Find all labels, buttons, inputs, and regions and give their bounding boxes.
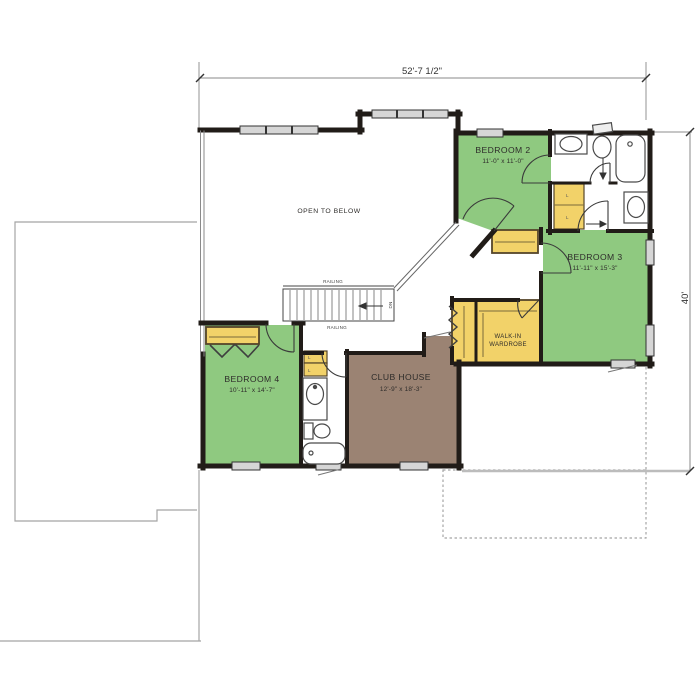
window [646,325,654,356]
bedroom4-size: 10'-11" x 14'-7" [229,387,275,394]
sink [628,197,645,218]
clubhouse-floor [349,336,457,464]
toilet-tank [593,123,613,135]
down-label: DN [388,301,393,308]
bedroom3-floor [543,230,650,363]
window [372,110,448,118]
open-to-below-label: OPEN TO BELOW [297,208,360,215]
window [477,129,503,137]
tub-drain [628,142,632,146]
bedroom3-name: BEDROOM 3 [567,252,622,262]
bedroom4-closet [206,327,259,344]
dimension-right-label: 40' [680,292,691,305]
window [400,462,428,470]
wardrobe-floor [452,300,541,363]
clubhouse-size: 12'-9" x 18'-3" [380,386,422,393]
wardrobe-name-line1: WALK-IN [495,334,522,340]
floor-plan-drawing: 52'-7 1/2" 40' [0,0,700,700]
bedroom3-size: 11'-11" x 15'-3" [572,265,617,272]
roof-outline-left [15,222,197,521]
railing-label-bottom: RAILING [327,325,347,330]
toilet-bowl [314,424,330,438]
wardrobe-name-line2: WARDROBE [489,342,527,348]
sink [560,137,582,152]
window [646,240,654,265]
bedroom4-floor [205,325,299,464]
clubhouse-name: CLUB HOUSE [371,372,431,382]
bedroom2-name: BEDROOM 2 [475,145,530,155]
window [232,462,260,470]
roof-outline-lower-right [443,470,646,538]
tub-drain [309,451,313,455]
floor-plan-canvas: 52'-7 1/2" 40' [0,0,700,700]
faucet [313,385,316,388]
window [240,126,318,134]
floor-fills [201,113,652,468]
railing-label-top: RAILING [323,279,343,284]
bedroom4-name: BEDROOM 4 [224,374,279,384]
toilet-bowl [593,136,611,158]
dimension-top-label: 52'-7 1/2" [402,66,442,77]
toilet-tank [304,423,313,439]
bedroom2-size: 11'-0" x 11'-0" [482,158,523,165]
